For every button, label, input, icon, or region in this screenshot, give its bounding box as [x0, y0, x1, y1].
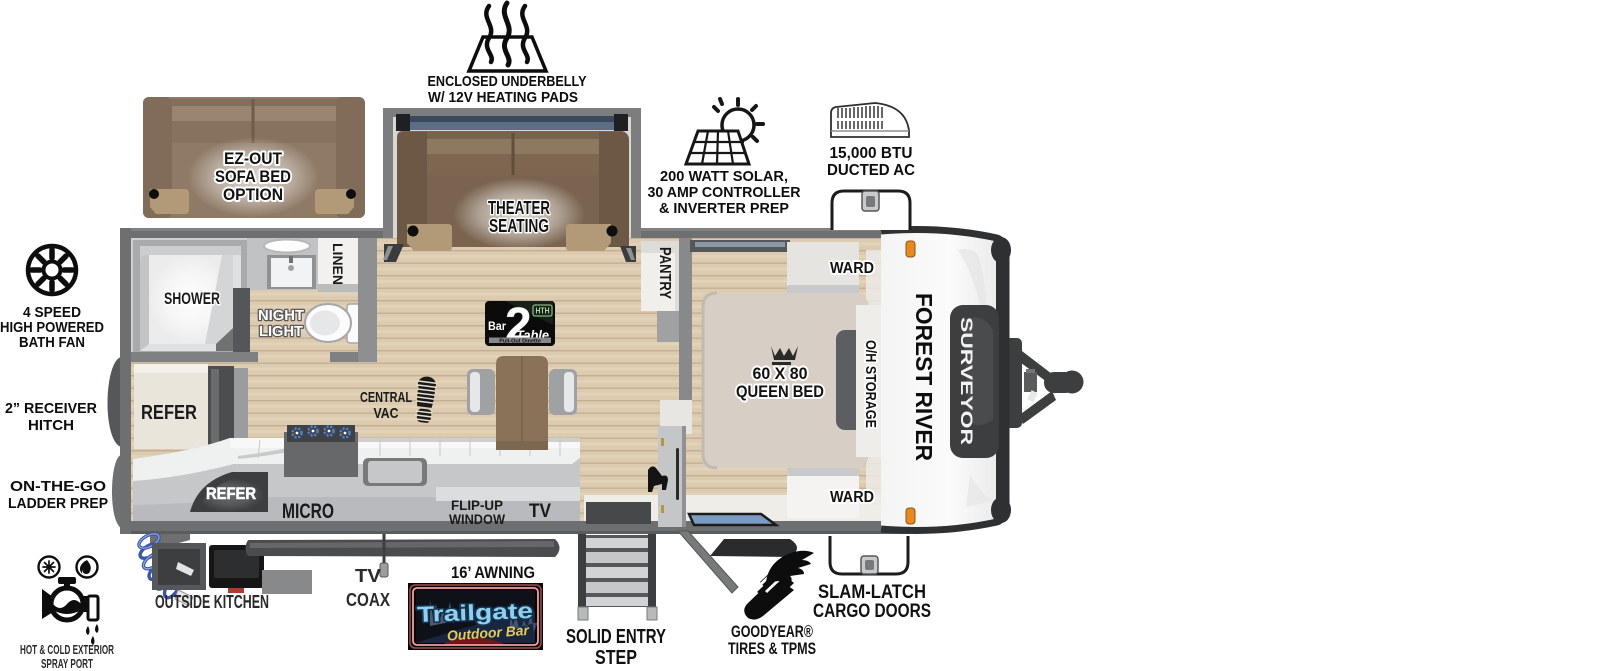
- svg-text:STEP: STEP: [595, 647, 637, 669]
- svg-text:REFER: REFER: [206, 484, 256, 503]
- svg-text:TV: TV: [529, 501, 551, 522]
- svg-text:SOLID ENTRY: SOLID ENTRY: [566, 626, 666, 648]
- svg-text:ENCLOSED UNDERBELLY: ENCLOSED UNDERBELLY: [428, 73, 587, 90]
- svg-text:OUTSIDE KITCHEN: OUTSIDE KITCHEN: [155, 592, 269, 612]
- svg-text:15,000 BTU: 15,000 BTU: [830, 145, 913, 162]
- svg-text:PANTRY: PANTRY: [656, 247, 673, 299]
- svg-text:SOFA BED: SOFA BED: [215, 167, 291, 186]
- svg-text:SURVEYOR: SURVEYOR: [957, 317, 976, 445]
- svg-text:2” RECEIVER: 2” RECEIVER: [5, 400, 97, 417]
- svg-text:16’ AWNING: 16’ AWNING: [451, 563, 535, 582]
- svg-text:CARGO DOORS: CARGO DOORS: [813, 601, 931, 622]
- svg-text:CENTRAL: CENTRAL: [360, 389, 412, 406]
- svg-text:NIGHT: NIGHT: [258, 307, 304, 324]
- svg-text:30 AMP CONTROLLER: 30 AMP CONTROLLER: [648, 184, 801, 201]
- svg-text:WARD: WARD: [830, 489, 874, 506]
- svg-text:LIGHT: LIGHT: [259, 323, 303, 340]
- svg-text:COAX: COAX: [346, 590, 390, 610]
- svg-text:LINEN: LINEN: [330, 243, 345, 285]
- svg-text:BATH FAN: BATH FAN: [19, 334, 85, 351]
- svg-text:ON-THE-GO: ON-THE-GO: [10, 478, 106, 495]
- svg-text:200 WATT SOLAR,: 200 WATT SOLAR,: [660, 168, 788, 185]
- svg-text:O/H STORAGE: O/H STORAGE: [862, 340, 879, 428]
- svg-text:SPRAY PORT: SPRAY PORT: [41, 656, 93, 671]
- svg-text:& INVERTER PREP: & INVERTER PREP: [659, 200, 789, 217]
- svg-text:THEATER: THEATER: [488, 198, 550, 218]
- svg-text:SEATING: SEATING: [489, 216, 549, 236]
- svg-text:REFER: REFER: [141, 402, 197, 424]
- svg-text:VAC: VAC: [374, 405, 399, 422]
- svg-text:TIRES & TPMS: TIRES & TPMS: [728, 639, 816, 658]
- svg-text:W/ 12V HEATING PADS: W/ 12V HEATING PADS: [428, 89, 578, 106]
- svg-text:WARD: WARD: [830, 260, 874, 277]
- svg-text:SLAM-LATCH: SLAM-LATCH: [818, 582, 926, 603]
- svg-text:EZ-OUT: EZ-OUT: [224, 149, 283, 168]
- svg-text:Pull-Out Dinette: Pull-Out Dinette: [499, 338, 541, 344]
- svg-text:WINDOW: WINDOW: [449, 511, 506, 527]
- svg-text:SHOWER: SHOWER: [164, 289, 220, 308]
- svg-text:LADDER PREP: LADDER PREP: [8, 495, 108, 512]
- svg-text:FOREST RIVER: FOREST RIVER: [911, 293, 937, 461]
- svg-text:QUEEN BED: QUEEN BED: [736, 382, 824, 401]
- svg-text:Bar: Bar: [488, 319, 506, 333]
- svg-text:MICRO: MICRO: [282, 500, 334, 523]
- svg-text:HOT & COLD EXTERIOR: HOT & COLD EXTERIOR: [20, 642, 114, 657]
- svg-text:60 X 80: 60 X 80: [753, 364, 808, 383]
- svg-text:OPTION: OPTION: [223, 185, 283, 204]
- svg-text:HITCH: HITCH: [28, 417, 74, 434]
- svg-text:TV: TV: [355, 566, 381, 586]
- svg-text:DUCTED AC: DUCTED AC: [827, 162, 915, 179]
- svg-text:HTH: HTH: [536, 307, 550, 316]
